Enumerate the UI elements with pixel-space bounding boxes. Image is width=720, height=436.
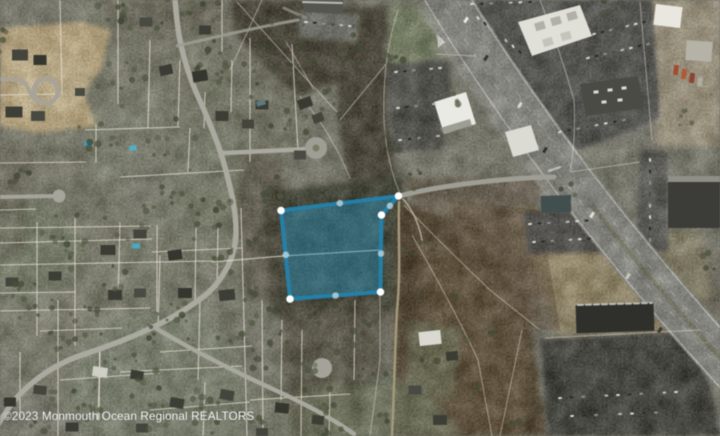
svg-text:©2023 Monmouth Ocean Regional: ©2023 Monmouth Ocean Regional REALTORS [3,409,254,423]
